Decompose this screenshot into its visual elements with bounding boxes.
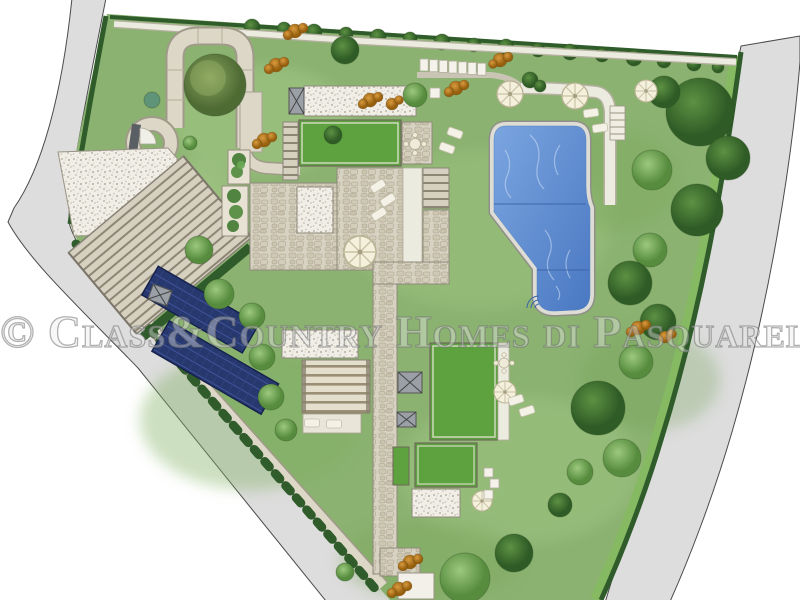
gravel-terrace-south [412, 489, 460, 517]
shrub [144, 92, 160, 108]
tree [258, 384, 284, 410]
tree-highlight [190, 60, 226, 96]
tree [275, 419, 297, 441]
terrace-stairs [423, 168, 449, 208]
tree [331, 36, 359, 64]
green-roof [430, 343, 498, 440]
skylight [289, 88, 304, 114]
tree [204, 279, 234, 309]
tree [603, 439, 641, 477]
pool-ladder [610, 106, 625, 140]
tree [440, 553, 490, 600]
spine-path [373, 284, 397, 574]
pergola [302, 360, 370, 413]
parasol [344, 236, 376, 268]
green-roof [299, 120, 401, 166]
tree [619, 345, 653, 379]
site-plan-drawing [0, 0, 800, 600]
tree [336, 563, 354, 581]
tree [249, 344, 275, 370]
parasol [497, 81, 523, 107]
tree [239, 303, 265, 329]
parasol [635, 80, 657, 102]
path-segment [423, 210, 449, 268]
tree [403, 83, 427, 107]
tree [608, 261, 652, 305]
path-elbow [373, 262, 449, 284]
bench [327, 420, 342, 428]
tree [632, 150, 672, 190]
tree [548, 493, 572, 517]
tree [571, 381, 625, 435]
tree [567, 459, 593, 485]
green-roof [393, 447, 409, 485]
sun-lounger [592, 123, 608, 133]
tree [633, 233, 667, 267]
gravel-roof-mid [282, 330, 358, 358]
tree [185, 236, 213, 264]
white-walk [403, 168, 422, 270]
service-stairs [283, 122, 298, 180]
tree [324, 126, 342, 144]
tree [495, 534, 533, 572]
bench [305, 419, 320, 427]
shrub [534, 80, 546, 92]
tree [706, 136, 750, 180]
parasol [562, 83, 588, 109]
gravel-court [297, 187, 333, 233]
tree [671, 184, 723, 236]
green-roof [415, 443, 477, 487]
site-plan-canvas: © Class&Country Homes di Pasquarelli Imm… [0, 0, 800, 600]
skylight [398, 372, 422, 393]
skylight [397, 412, 416, 427]
sun-lounger [583, 108, 599, 118]
garden-table [430, 88, 440, 98]
shrub [183, 136, 197, 150]
